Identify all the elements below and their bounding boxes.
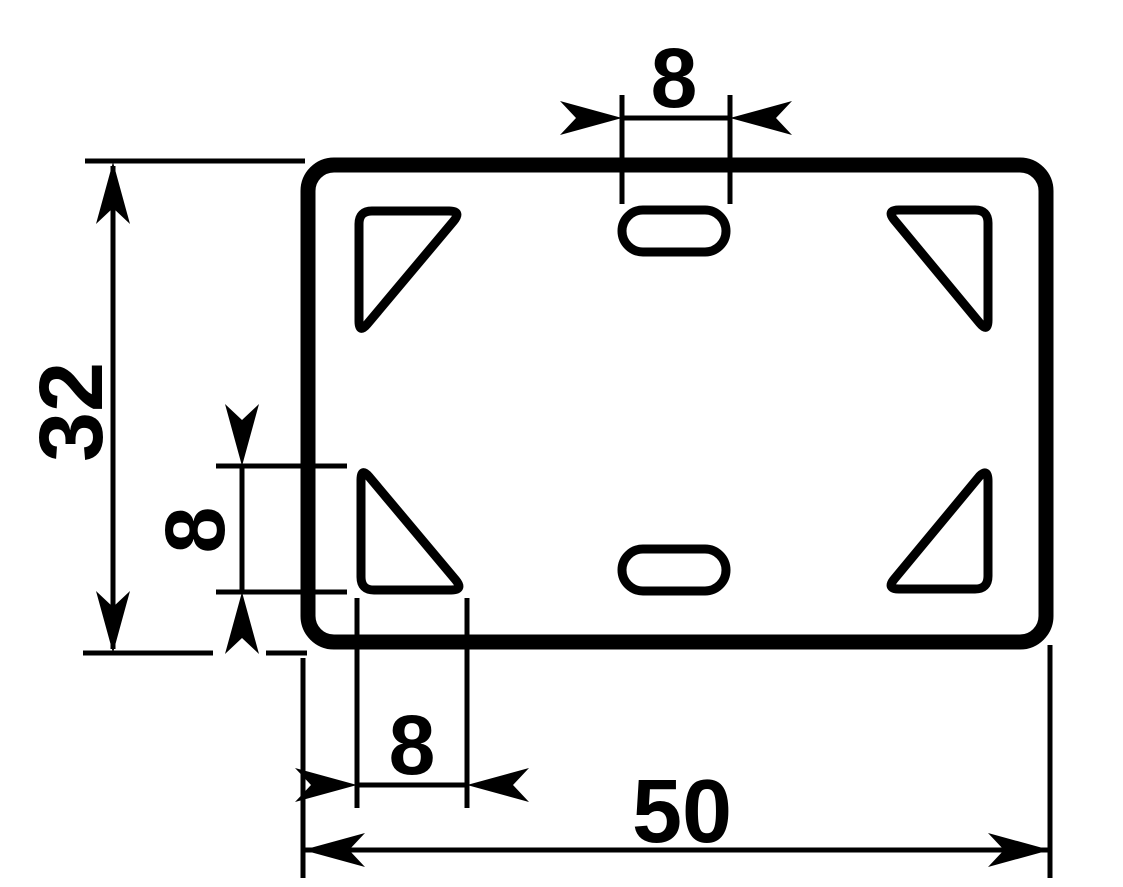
arrowhead-down-icon xyxy=(225,404,259,466)
dimension-label-height: 32 xyxy=(22,362,122,462)
arrowhead-left-icon xyxy=(730,101,792,135)
dimension-label-width: 50 xyxy=(632,762,732,862)
dimension-height-32: 32 xyxy=(22,161,307,653)
cutout-slot-top xyxy=(622,210,726,252)
cutout-slot-bottom xyxy=(622,549,726,591)
dimension-label-cutout-width: 8 xyxy=(389,698,436,792)
drawing-svg: 32 8 8 8 xyxy=(0,0,1123,887)
arrowhead-left-icon xyxy=(467,768,529,802)
dimension-label-slot-width: 8 xyxy=(651,31,698,125)
arrowhead-up-icon xyxy=(225,592,259,654)
technical-drawing: 32 8 8 8 xyxy=(0,0,1123,887)
arrowhead-right-icon xyxy=(560,101,622,135)
dimension-label-cutout-height: 8 xyxy=(148,507,242,554)
